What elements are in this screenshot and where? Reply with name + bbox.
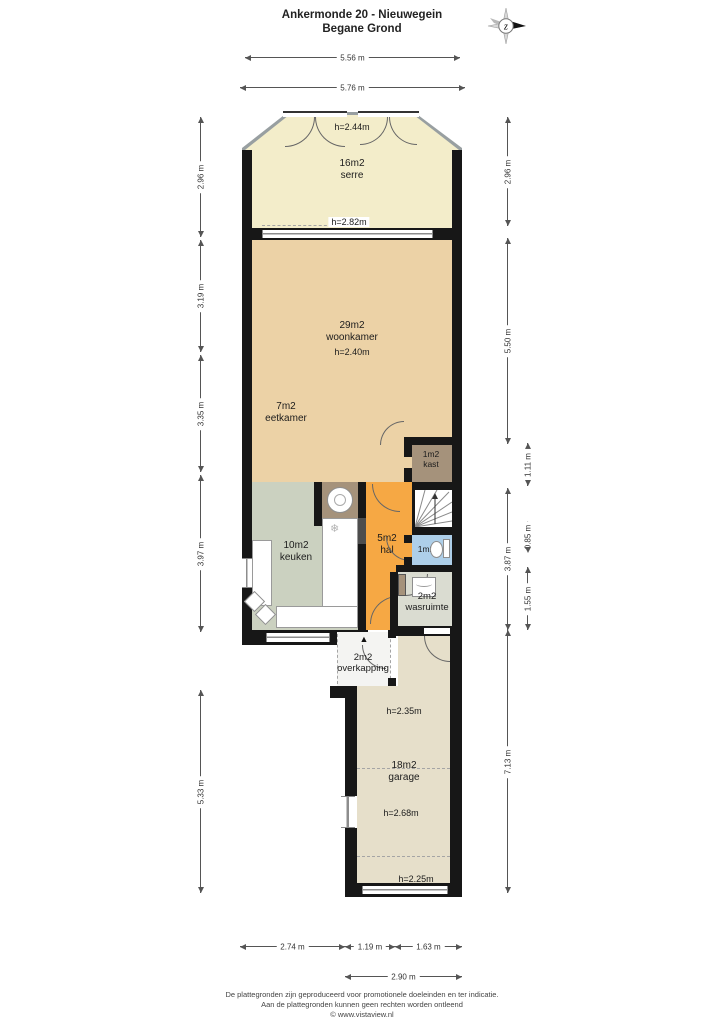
dashed-line — [390, 634, 391, 684]
garage-name: garage — [388, 772, 419, 784]
laundry-tub-rim — [416, 581, 432, 587]
dimension-label: 1.19 m — [354, 943, 386, 952]
serre-name: serre — [339, 170, 364, 182]
window — [266, 633, 330, 642]
toilet-icon — [443, 539, 450, 558]
plan-address: Ankermonde 20 - Nieuwegein — [0, 8, 724, 22]
dimension-line: 5.33 m — [200, 690, 201, 893]
dimension-label: 1.63 m — [412, 943, 444, 952]
room-label-woonkamer: 29m2 woonkamer — [326, 320, 378, 344]
disclaimer-line-1: De plattegronden zijn geproduceerd voor … — [0, 990, 724, 1000]
wall — [358, 482, 366, 630]
overkapping-area: 2m2 — [337, 652, 389, 663]
room-label-overkapping: 2m2 overkapping — [337, 652, 389, 674]
room-label-eetkamer: 7m2 eetkamer — [265, 401, 307, 425]
wall — [452, 240, 462, 632]
window — [242, 558, 252, 588]
wall — [404, 468, 412, 482]
keuken-name: keuken — [280, 552, 312, 564]
dimension-line: 3.35 m — [200, 355, 201, 472]
dimension-line: 1.11 m — [527, 443, 528, 486]
dimension-line: 5.50 m — [507, 238, 508, 444]
boiler-icon-inner — [334, 494, 346, 506]
stairs-icon — [415, 490, 452, 527]
dimension-label: 5.56 m — [336, 54, 368, 63]
dimension-label: 7.13 m — [504, 745, 513, 777]
dashed-line — [262, 225, 332, 226]
dimension-line: 1.55 m — [527, 567, 528, 630]
wall — [452, 150, 462, 228]
wall — [390, 572, 398, 630]
dimension-label: 2.74 m — [276, 943, 308, 952]
wall — [242, 150, 252, 228]
floor-plan: Ankermonde 20 - Nieuwegein Begane Grond … — [0, 0, 724, 1024]
disclaimer-line-2: Aan de plattegronden kunnen geen rechten… — [0, 1000, 724, 1010]
garage-height-mid-label: h=2.68m — [383, 808, 418, 818]
dimension-label: 3.87 m — [504, 543, 513, 575]
dimension-line: 7.13 m — [507, 630, 508, 893]
kitchen-counter — [276, 606, 358, 628]
copyright-url: © www.vistaview.nl — [0, 1010, 724, 1020]
room-label-keuken: 10m2 keuken — [280, 540, 312, 564]
dimension-line: 2.74 m — [240, 946, 345, 947]
wasruimte-area: 2m2 — [405, 591, 448, 602]
kast-name: kast — [423, 459, 440, 469]
overkapping-name: overkapping — [337, 663, 389, 674]
dimension-label: 3.19 m — [197, 280, 206, 312]
wall — [404, 557, 412, 565]
garage-height-top-label: h=2.35m — [386, 706, 421, 716]
wasruimte-name: wasruimte — [405, 602, 448, 613]
woonkamer-height-label: h=2.40m — [334, 347, 369, 357]
dimension-label: 3.97 m — [197, 537, 206, 569]
dimension-line: 0.85 m — [527, 521, 528, 553]
dimension-label: 5.50 m — [504, 325, 513, 357]
wall — [388, 678, 396, 686]
dimension-label: 2.90 m — [387, 973, 419, 982]
wall — [242, 240, 252, 558]
compass-letter: z — [503, 22, 508, 33]
serre-lower-height-label: h=2.82m — [328, 217, 369, 227]
eetkamer-area: 7m2 — [265, 401, 307, 413]
wall — [396, 565, 462, 572]
wall — [388, 630, 396, 638]
garage-side-door-opening — [424, 628, 450, 634]
wall — [345, 686, 357, 796]
kitchen-counter — [322, 518, 358, 608]
serre-area: 16m2 — [339, 158, 364, 170]
dimension-line: 5.76 m — [240, 87, 465, 88]
garage-height-bottom-label: h=2.25m — [398, 874, 433, 884]
keuken-area: 10m2 — [280, 540, 312, 552]
dimension-label: 2.96 m — [504, 155, 513, 187]
disclaimer: De plattegronden zijn geproduceerd voor … — [0, 990, 724, 1019]
dimension-label: 5.33 m — [197, 775, 206, 807]
sliding-door-opening — [262, 230, 433, 238]
woonkamer-name: woonkamer — [326, 332, 378, 344]
compass-icon: z — [484, 4, 528, 48]
wall — [404, 527, 462, 535]
dimension-line: 5.56 m — [245, 57, 460, 58]
window — [341, 796, 355, 828]
wall — [404, 445, 412, 457]
dimension-line: 3.19 m — [200, 240, 201, 352]
toilet-icon — [430, 541, 443, 558]
page-title: Ankermonde 20 - Nieuwegein Begane Grond — [0, 8, 724, 37]
dimension-line: 2.96 m — [507, 117, 508, 226]
plan-floor-name: Begane Grond — [0, 22, 724, 36]
dimension-label: 2.96 m — [197, 161, 206, 193]
room-label-serre: 16m2 serre — [339, 158, 364, 182]
fridge-snowflake-icon: ❄ — [330, 522, 339, 535]
dimension-line: 3.87 m — [507, 488, 508, 630]
wall — [450, 636, 462, 895]
room-label-garage: 18m2 garage — [388, 760, 419, 784]
garage-door-opening — [362, 886, 448, 894]
woonkamer-area: 29m2 — [326, 320, 378, 332]
entrance-arrow-icon: ▲ — [356, 634, 372, 644]
dimension-line: 1.63 m — [395, 946, 462, 947]
garage-area: 18m2 — [388, 760, 419, 772]
room-label-wasruimte: 2m2 wasruimte — [405, 591, 448, 613]
dimension-line: 3.97 m — [200, 475, 201, 632]
dimension-label: 3.35 m — [197, 397, 206, 429]
wall — [404, 437, 462, 445]
room-label-kast: 1m2 kast — [423, 449, 440, 469]
kast-area: 1m2 — [423, 449, 440, 459]
dashed-line — [357, 856, 450, 857]
dimension-label: 5.76 m — [336, 84, 368, 93]
serre-height-label: h=2.44m — [334, 122, 369, 132]
wall — [404, 482, 462, 490]
wall — [404, 535, 412, 543]
dimension-line: 2.90 m — [345, 976, 462, 977]
dimension-line: 2.96 m — [200, 117, 201, 237]
eetkamer-name: eetkamer — [265, 413, 307, 425]
dimension-label: 0.85 m — [524, 521, 533, 553]
dimension-label: 1.11 m — [524, 449, 533, 481]
dimension-label: 1.55 m — [524, 582, 533, 614]
dimension-line: 1.19 m — [345, 946, 395, 947]
wall — [314, 482, 322, 526]
